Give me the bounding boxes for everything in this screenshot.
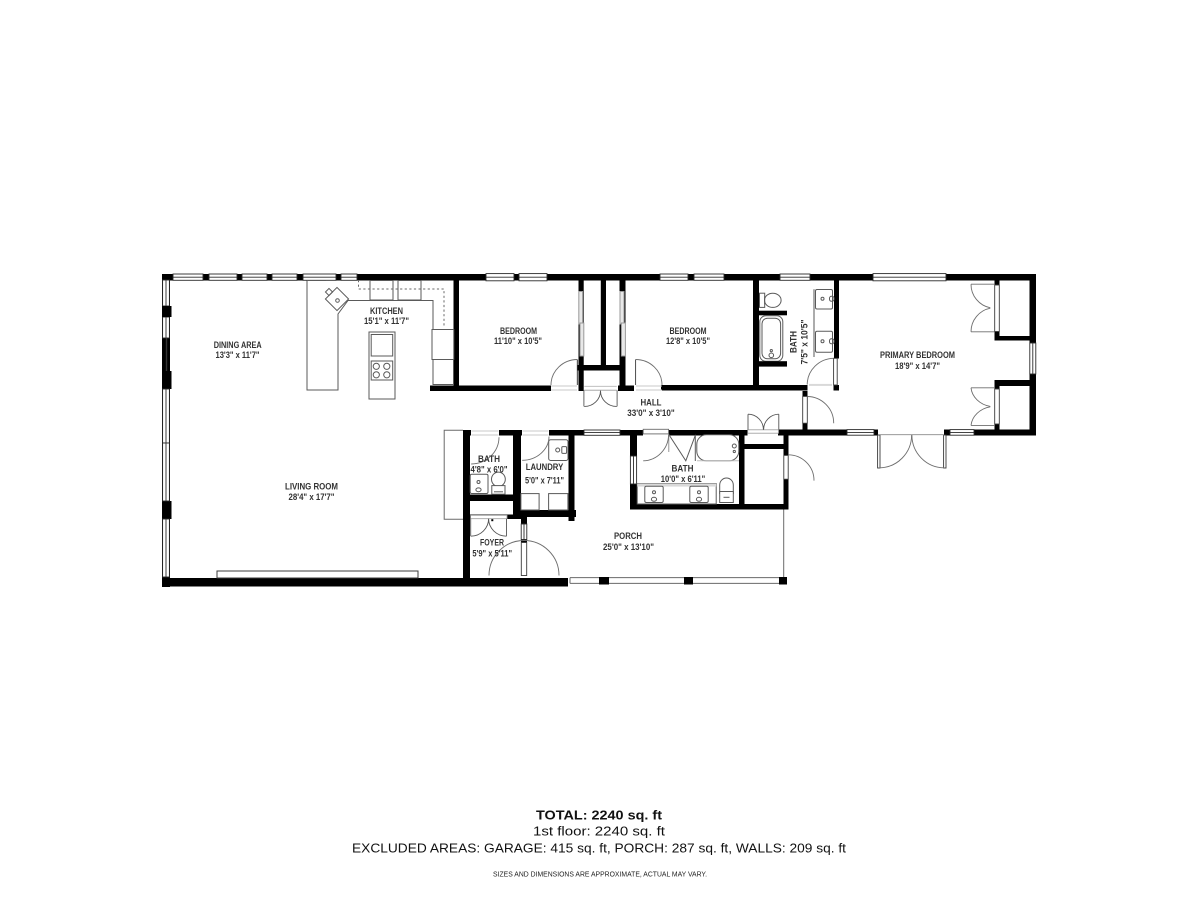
svg-text:13'3" x 11'7": 13'3" x 11'7": [216, 350, 260, 360]
svg-text:PRIMARY BEDROOM: PRIMARY BEDROOM: [880, 350, 955, 360]
svg-text:FOYER: FOYER: [480, 538, 504, 548]
svg-text:HALL: HALL: [641, 398, 662, 408]
svg-text:5'0" x 7'11": 5'0" x 7'11": [525, 476, 564, 486]
svg-text:BEDROOM: BEDROOM: [670, 326, 707, 336]
svg-text:12'8" x 10'5": 12'8" x 10'5": [666, 336, 710, 346]
svg-text:7'5" x 10'5": 7'5" x 10'5": [800, 320, 810, 365]
svg-text:15'1" x 11'7": 15'1" x 11'7": [364, 316, 409, 326]
svg-text:DINING AREA: DINING AREA: [214, 340, 262, 350]
svg-text:33'0" x 3'10": 33'0" x 3'10": [627, 408, 675, 418]
svg-text:BATH: BATH: [789, 331, 799, 353]
svg-text:LAUNDRY: LAUNDRY: [526, 462, 564, 472]
svg-text:4'8" x 6'0": 4'8" x 6'0": [471, 465, 508, 475]
svg-text:BATH: BATH: [478, 454, 500, 464]
svg-text:KITCHEN: KITCHEN: [370, 306, 403, 316]
svg-text:PORCH: PORCH: [614, 531, 642, 541]
svg-text:LIVING ROOM: LIVING ROOM: [285, 482, 338, 492]
svg-text:1st floor: 2240 sq. ft: 1st floor: 2240 sq. ft: [533, 824, 665, 839]
svg-text:BATH: BATH: [672, 464, 694, 474]
svg-text:18'9" x 14'7": 18'9" x 14'7": [895, 361, 940, 371]
svg-text:28'4" x 17'7": 28'4" x 17'7": [289, 492, 335, 502]
svg-text:11'10" x 10'5": 11'10" x 10'5": [494, 336, 542, 346]
svg-text:25'0" x 13'10": 25'0" x 13'10": [603, 542, 654, 552]
svg-text:SIZES AND DIMENSIONS ARE APPRO: SIZES AND DIMENSIONS ARE APPROXIMATE, AC…: [493, 870, 707, 879]
svg-text:EXCLUDED AREAS: GARAGE: 415 sq: EXCLUDED AREAS: GARAGE: 415 sq. ft, PORC…: [352, 841, 846, 856]
svg-text:BEDROOM: BEDROOM: [500, 326, 537, 336]
svg-text:TOTAL: 2240 sq. ft: TOTAL: 2240 sq. ft: [536, 808, 663, 823]
svg-text:10'0" x 6'11": 10'0" x 6'11": [661, 474, 705, 484]
svg-text:5'9" x 5'11": 5'9" x 5'11": [472, 549, 512, 559]
